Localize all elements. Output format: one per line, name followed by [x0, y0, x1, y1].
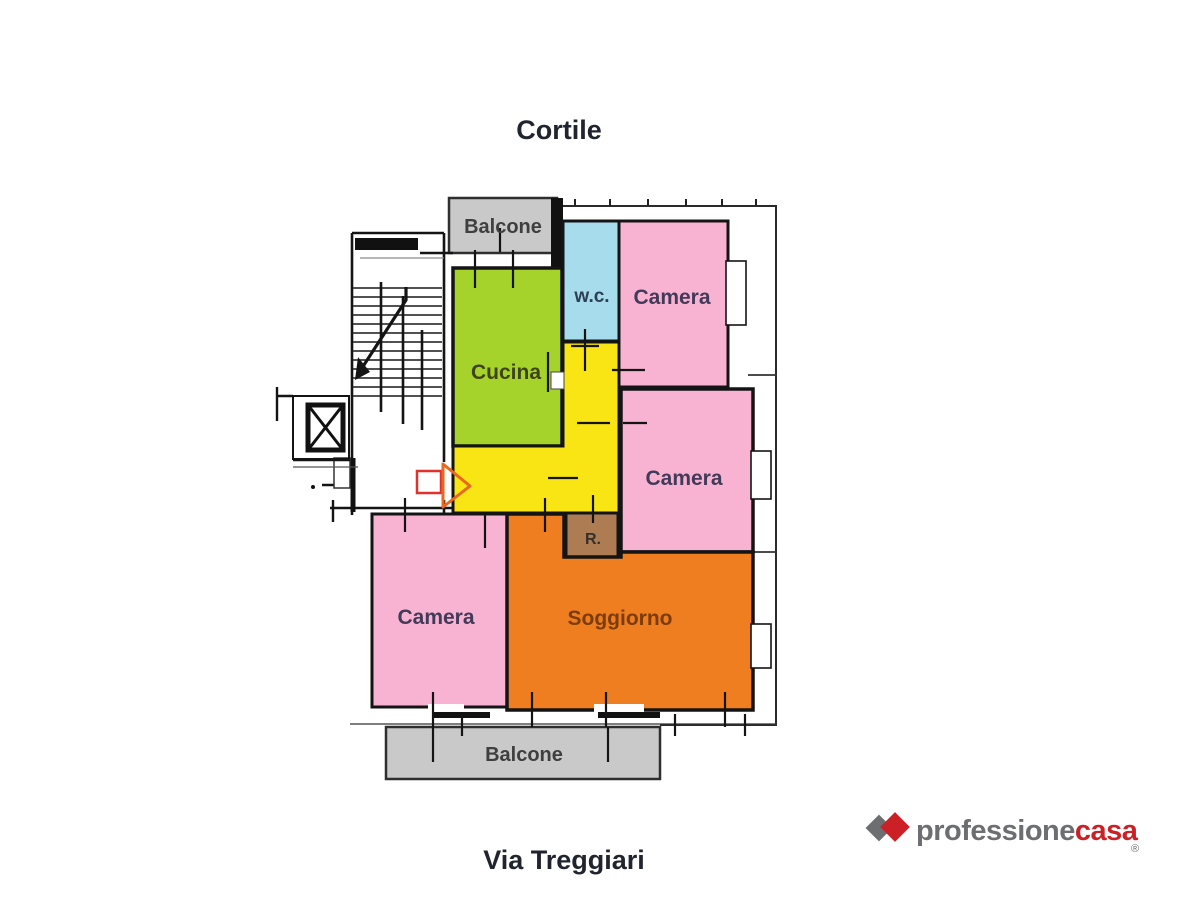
cortile-label: Cortile: [516, 115, 602, 145]
balcone-bottom-label: Balcone: [485, 744, 563, 766]
wall-bar-top: [551, 198, 563, 269]
plan-dot: [311, 485, 315, 489]
floor-plan-page: Cortile Via Treggiari: [0, 0, 1200, 900]
camera-bottom-label: Camera: [397, 606, 474, 629]
window-soggiorno: [751, 624, 771, 668]
floor-plan-svg: Cortile Via Treggiari: [0, 0, 1200, 900]
camera-mid-label: Camera: [645, 467, 722, 490]
room-wc: [563, 221, 619, 341]
window-camera-top: [726, 261, 746, 325]
logo-text-red: casa: [1075, 815, 1139, 847]
cucina-door-gap: [551, 372, 564, 389]
registered-mark: ®: [1131, 843, 1139, 855]
stairwell: [352, 233, 444, 515]
stair-direction-arrow: [362, 287, 406, 368]
logo-diamond-red-icon: [880, 812, 910, 842]
entrance-red-rect: [417, 471, 441, 493]
threshold-right: [598, 712, 660, 718]
door-gap-soggiorno: [594, 704, 644, 712]
landing-door-box: [334, 458, 350, 488]
camera-top-label: Camera: [633, 286, 710, 309]
top-boundary-ticks: [575, 199, 756, 206]
logo-text-gray: professione: [916, 815, 1075, 847]
logo: professionecasa ®: [866, 812, 1140, 855]
stair-treads: [353, 288, 442, 396]
window-camera-mid: [751, 451, 771, 499]
via-treggiari-label: Via Treggiari: [483, 845, 645, 875]
ripostiglio-label: R.: [585, 531, 601, 548]
logo-text: professionecasa: [916, 815, 1139, 847]
room-cucina: [453, 268, 562, 446]
cucina-label: Cucina: [471, 361, 541, 384]
wc-label: w.c.: [573, 286, 609, 307]
stair-landing-bar: [355, 238, 418, 250]
balcone-top-label: Balcone: [464, 216, 542, 238]
soggiorno-label: Soggiorno: [568, 607, 673, 630]
